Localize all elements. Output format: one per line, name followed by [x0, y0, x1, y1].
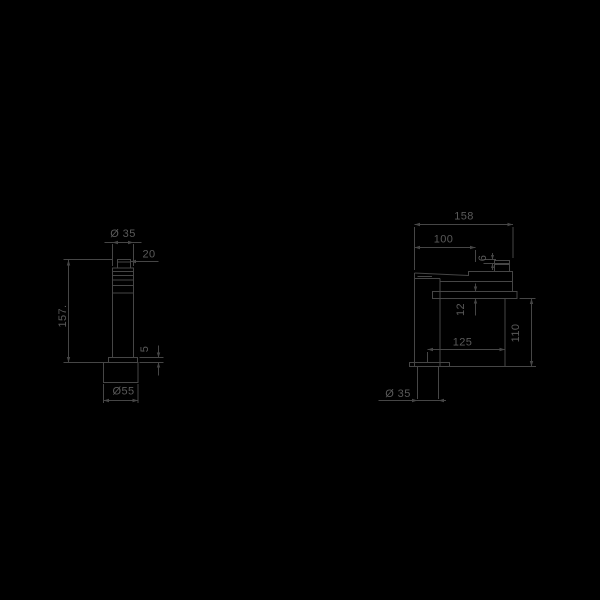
dim-label-flange-height: 5	[139, 346, 151, 353]
arrow-up-icon	[530, 299, 533, 305]
arrow-right-icon	[128, 241, 134, 244]
dim-side-shank-diameter: Ø 35	[379, 388, 447, 402]
dim-side-flange-thickness: 12	[455, 284, 477, 317]
arrow-up-icon	[67, 260, 70, 266]
dim-front-handle-width: 20	[131, 249, 159, 264]
arrow-down-icon	[157, 353, 160, 358]
arrow-up-icon	[491, 264, 494, 269]
dim-side-spout-lip: 6	[477, 253, 510, 270]
front-body-outline	[113, 268, 134, 358]
side-handle-knob	[495, 261, 510, 272]
dim-front-flange-height: 5	[139, 346, 164, 376]
dim-side-total-depth: 158	[415, 211, 514, 271]
dim-lines	[428, 350, 506, 363]
arrow-down-icon	[491, 255, 494, 260]
dim-lines	[415, 248, 476, 263]
arrow-up-icon	[474, 299, 477, 304]
arrow-right-icon	[508, 223, 514, 226]
arrow-left-icon	[113, 241, 119, 244]
arrow-right-icon	[470, 246, 476, 249]
dim-label-spout-projection: 100	[434, 234, 454, 246]
dim-label-handle-width: 20	[142, 249, 155, 261]
arrow-left-icon	[439, 399, 445, 402]
front-view: Ø 35 20 157. 5 Ø55	[57, 228, 164, 403]
dim-label-base-diameter: Ø55	[113, 386, 135, 398]
arrow-right-icon	[500, 348, 506, 351]
arrow-right-icon	[412, 399, 418, 402]
dim-label-top-diameter: Ø 35	[110, 228, 135, 240]
arrow-left-icon	[415, 223, 421, 226]
drawing-canvas: Ø 35 20 157. 5 Ø55	[0, 0, 600, 600]
arrow-down-icon	[67, 357, 70, 363]
dim-label-total-height: 157.	[57, 304, 69, 327]
arrow-left-icon	[428, 348, 434, 351]
side-shank	[418, 367, 439, 400]
arrow-left-icon	[104, 399, 110, 402]
front-base-box	[104, 363, 139, 383]
dim-side-body-depth: 125	[428, 337, 506, 363]
side-spout-and-plate	[415, 272, 513, 292]
dim-label-shank-diameter: Ø 35	[385, 388, 410, 400]
front-view-linework	[64, 260, 139, 383]
arrow-down-icon	[474, 287, 477, 292]
side-view: 158 100 6 12 125	[379, 211, 537, 403]
dim-label-body-height: 110	[510, 324, 522, 343]
dim-side-body-height: 110	[510, 299, 536, 367]
arrow-left-icon	[415, 246, 421, 249]
dim-side-spout-projection: 100	[415, 234, 476, 263]
front-grip-rings	[113, 272, 134, 294]
dim-label-body-depth: 125	[453, 337, 473, 349]
front-handle-knob	[118, 260, 131, 269]
dim-front-base-diameter: Ø55	[104, 384, 139, 403]
side-flange	[433, 292, 518, 299]
dim-label-flange-thickness: 12	[455, 303, 467, 316]
dim-label-total-depth: 158	[454, 211, 474, 223]
dim-front-total-height: 157.	[57, 260, 70, 363]
arrow-down-icon	[530, 361, 533, 367]
side-base-plate	[410, 363, 450, 367]
front-flange	[109, 358, 138, 363]
dim-label-spout-lip: 6	[477, 255, 489, 262]
arrow-up-icon	[157, 363, 160, 368]
arrow-right-icon	[133, 399, 139, 402]
